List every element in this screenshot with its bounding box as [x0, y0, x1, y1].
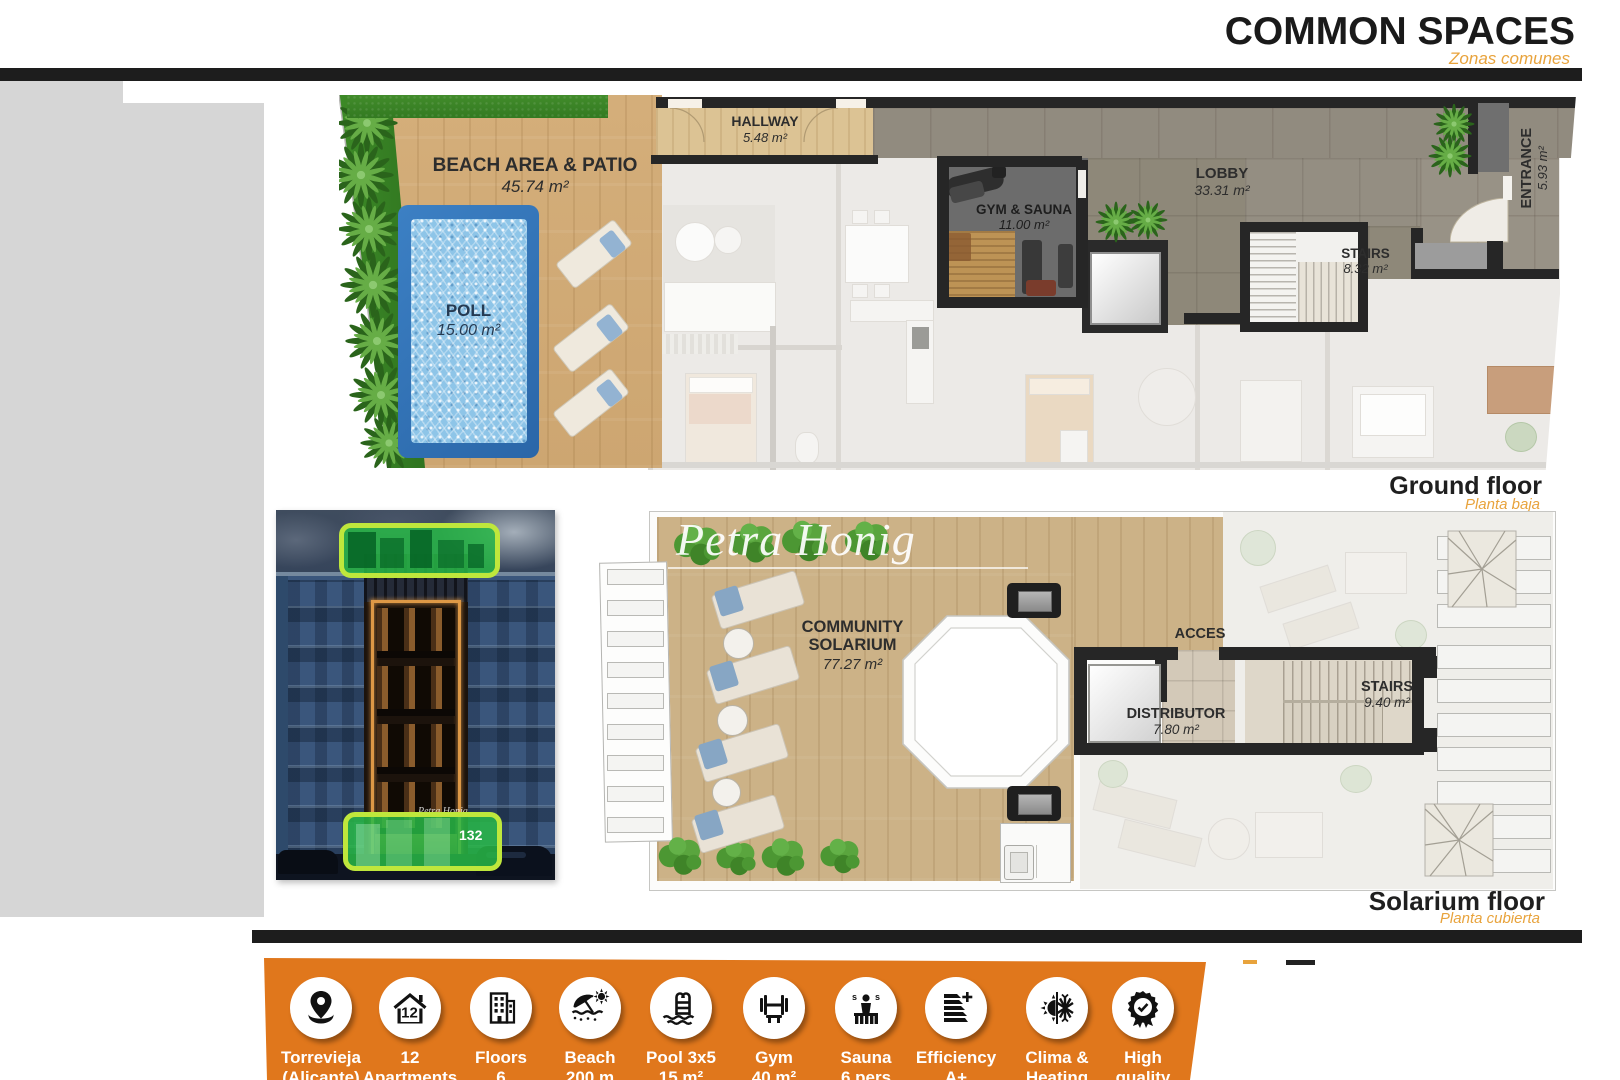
svg-text:s: s — [852, 992, 857, 1002]
svg-text:12: 12 — [401, 1005, 418, 1022]
svg-text:s: s — [875, 992, 880, 1002]
